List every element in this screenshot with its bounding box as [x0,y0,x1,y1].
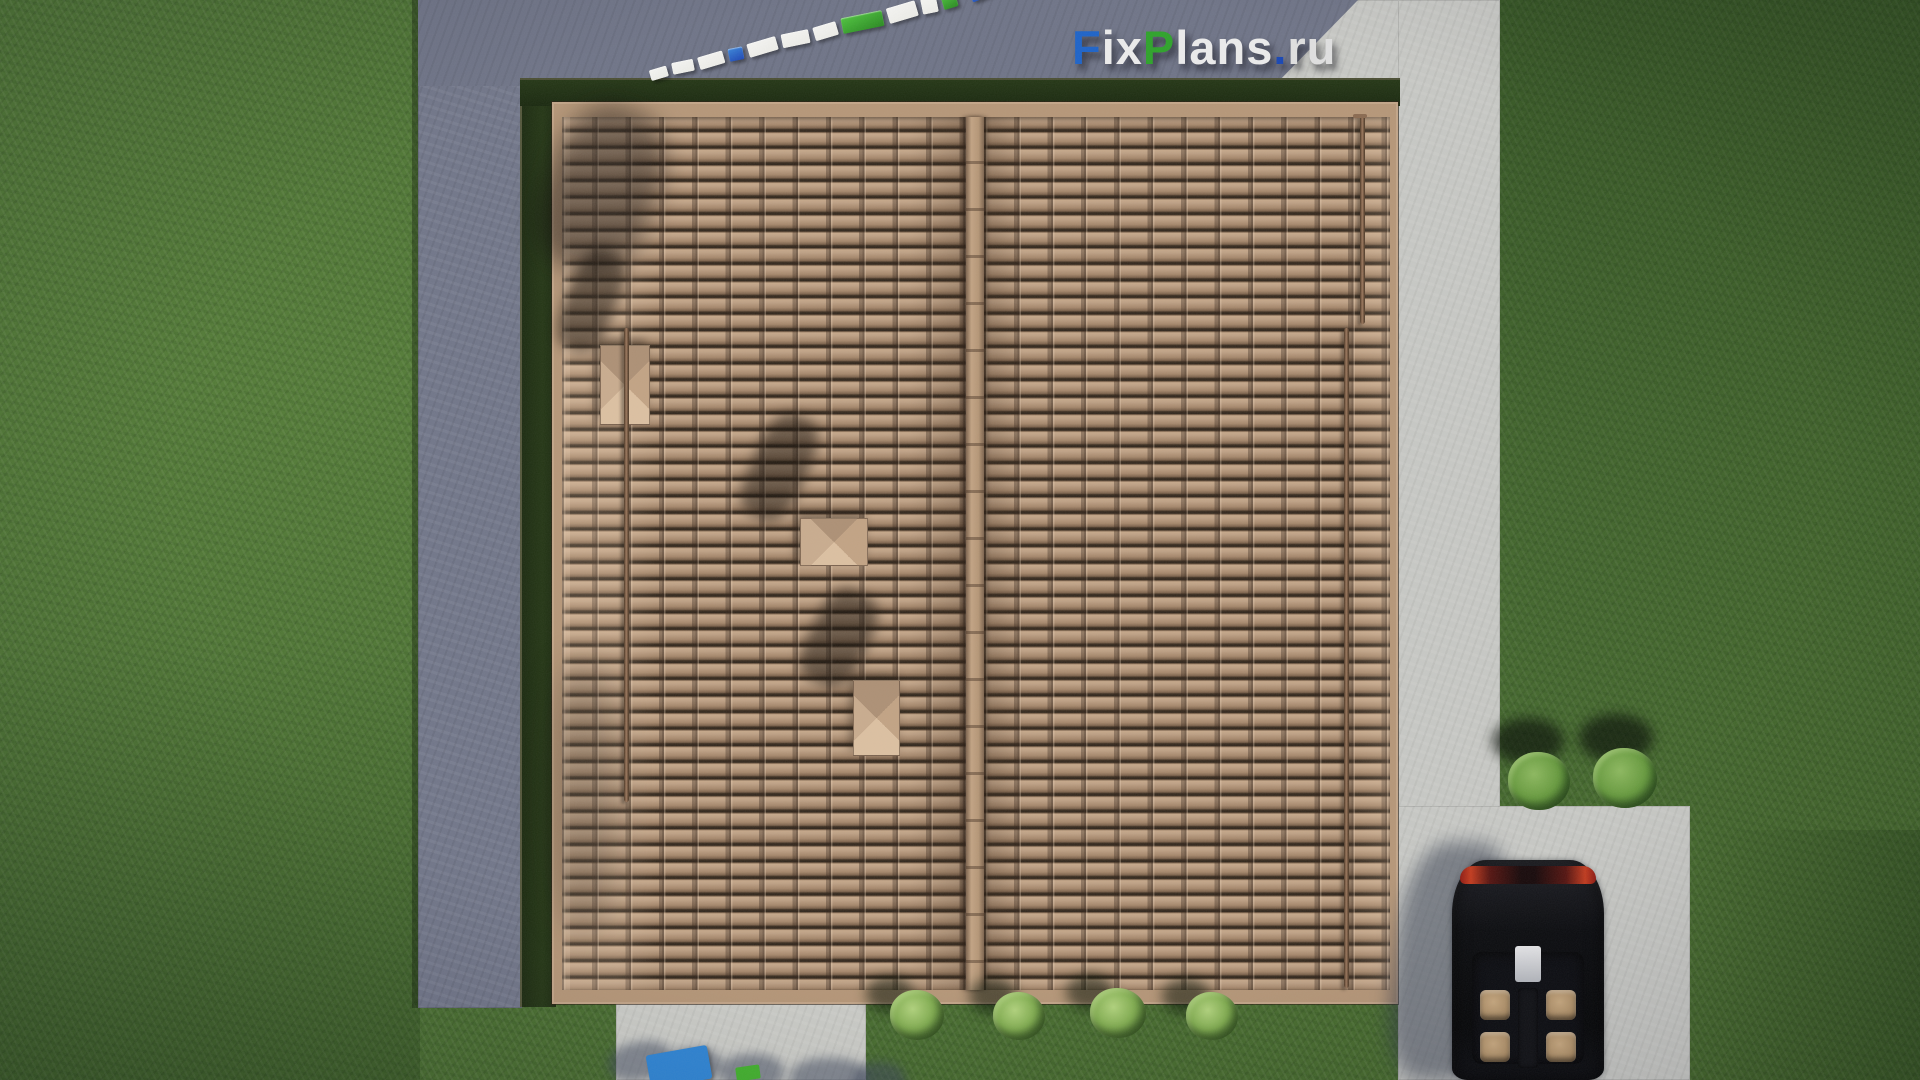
scale-bar-segment [780,29,810,48]
concrete-path-right [1398,0,1500,812]
watermark-logo: FixPlans.ru [1072,20,1336,75]
cast-shadow-bottom-left [548,662,618,932]
roof-vent-2 [800,518,868,566]
parked-car [1396,838,1706,1080]
scale-bar-segment [963,0,1001,3]
shrub-foliage [993,992,1045,1040]
logo-dot: . [1273,21,1287,74]
roof-vent-3 [853,680,900,756]
scale-bar [647,0,1002,88]
snow-guard-pipe-left [624,328,629,802]
concrete-path-left [418,0,522,1008]
logo-letter-p: P [1143,21,1175,74]
scale-bar-segment [940,0,959,10]
snow-guard-pipe-right-upper [1360,116,1365,324]
scale-bar-segment [697,50,726,70]
render-scene: FixPlans.ru [0,0,1920,1080]
lawn-shade-top-right [1470,0,1920,830]
scale-bar-segment [920,0,939,15]
roof-slope-right [984,117,1390,990]
scale-bar-segment [649,65,669,81]
logo-letters-ru: ru [1287,21,1336,74]
car-seat [1480,1032,1510,1062]
logo-letters-ix: ix [1102,21,1143,74]
roof-ridge [966,117,984,990]
lawn-shade-bottom-left [0,640,420,1080]
shrub-foliage [1090,988,1146,1038]
car-seat [1546,990,1576,1020]
scale-bar-wrap [646,0,966,95]
car-center-console [1518,988,1538,1068]
scale-bar-segment [812,21,839,41]
bottom-marker [588,1030,898,1080]
scale-bar-segment [840,10,884,34]
car-taillight-strip [1460,866,1596,884]
scale-bar-segment [671,59,695,75]
scale-bar-segment [746,36,779,58]
snow-guard-pipe-right-lower [1344,328,1349,988]
car-body [1452,860,1604,1080]
house-roof [552,102,1398,1004]
logo-letters-lans: lans [1175,21,1273,74]
shrub-foliage [1508,752,1570,810]
scale-bar-segment [886,0,919,24]
marker-green-block [735,1064,761,1080]
shrub-foliage [890,990,944,1040]
car-seat [1546,1032,1576,1062]
car-windshield-bar [1515,946,1541,982]
shrub-foliage [1593,748,1657,808]
logo-letter-f: F [1072,21,1102,74]
shrub-foliage [1186,992,1238,1040]
scale-bar-segment [727,46,744,62]
car-seat [1480,990,1510,1020]
